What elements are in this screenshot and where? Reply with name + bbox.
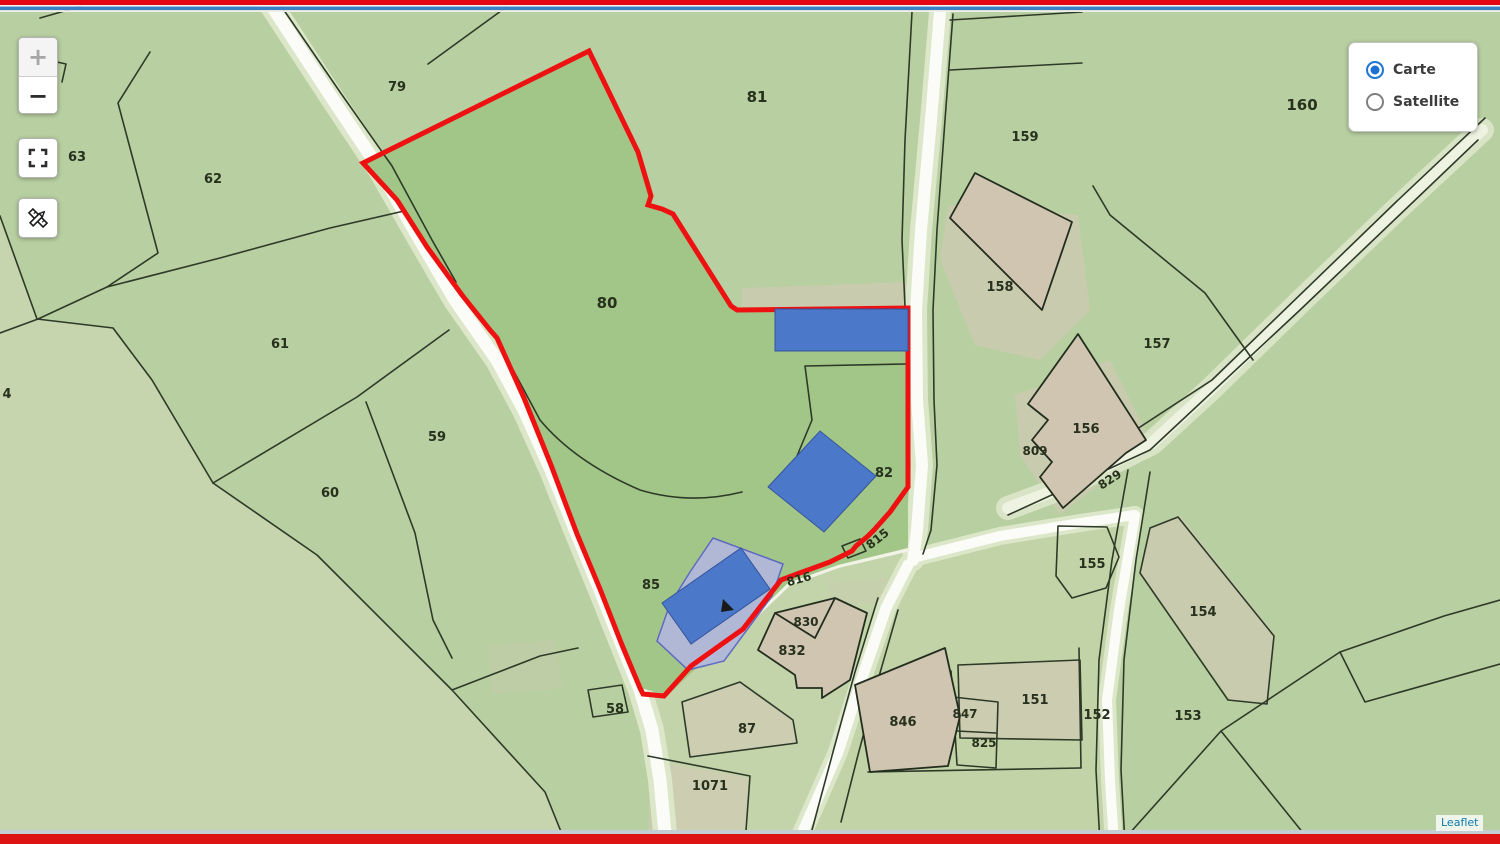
layer-label-carte: Carte: [1393, 62, 1436, 78]
bottom-red-border: [0, 834, 1500, 844]
parcel-label-58: 58: [606, 702, 624, 717]
parcel-label-830: 830: [793, 615, 818, 629]
fullscreen-button[interactable]: [18, 138, 58, 178]
parcel-label-64: 4: [2, 387, 11, 402]
parcel-label-82: 82: [875, 466, 893, 481]
blue-accent-stripe: [0, 7, 1500, 11]
top-red-border: [0, 0, 1500, 5]
parcel-label-1071: 1071: [692, 779, 728, 794]
parcel-label-156: 156: [1072, 422, 1099, 437]
parcel-label-155: 155: [1078, 557, 1105, 572]
parcel-label-81: 81: [747, 88, 768, 106]
parcel-label-63: 63: [68, 150, 86, 165]
parcel-label-159: 159: [1011, 130, 1038, 145]
layer-label-satellite: Satellite: [1393, 94, 1459, 110]
parcel-label-60: 60: [321, 486, 339, 501]
parcel-label-61: 61: [271, 337, 289, 352]
parcel-label-846: 846: [889, 715, 916, 730]
zoom-control: + −: [18, 37, 58, 114]
layer-control: Carte Satellite: [1348, 42, 1478, 132]
parcel-label-158: 158: [986, 280, 1013, 295]
blue-building-north: [775, 309, 908, 351]
parcel-label-825: 825: [971, 736, 996, 750]
parcel-label-152: 152: [1083, 708, 1110, 723]
layer-option-satellite[interactable]: Satellite: [1366, 89, 1477, 115]
fullscreen-icon: [27, 147, 49, 169]
map-canvas[interactable]: 79 81 63 62 4 61 59 60 80 82 85 58 87 10…: [0, 0, 1500, 844]
parcel-label-832: 832: [778, 644, 805, 659]
parcel-label-160: 160: [1286, 96, 1317, 114]
radio-carte[interactable]: [1366, 61, 1384, 79]
parcel-label-62: 62: [204, 172, 222, 187]
radio-satellite[interactable]: [1366, 93, 1384, 111]
zoom-out-button[interactable]: −: [19, 77, 57, 114]
parcel-label-154: 154: [1189, 605, 1216, 620]
parcel-label-847: 847: [952, 707, 977, 721]
parcel-label-87: 87: [738, 722, 756, 737]
zoom-in-button[interactable]: +: [19, 38, 57, 77]
measure-pencil-ruler-icon: [25, 205, 51, 231]
leaflet-attribution-link[interactable]: Leaflet: [1436, 815, 1483, 831]
map-window: 79 81 63 62 4 61 59 60 80 82 85 58 87 10…: [0, 0, 1500, 844]
parcel-label-79: 79: [388, 80, 406, 95]
measure-button[interactable]: [18, 198, 58, 238]
parcel-label-80: 80: [597, 294, 618, 312]
parcel-label-59: 59: [428, 430, 446, 445]
parcel-label-809: 809: [1022, 444, 1047, 458]
parcel-label-151: 151: [1021, 693, 1048, 708]
parcel-label-153: 153: [1174, 709, 1201, 724]
parcel-label-157: 157: [1143, 337, 1170, 352]
layer-option-carte[interactable]: Carte: [1366, 57, 1477, 83]
parcel-label-85: 85: [642, 578, 660, 593]
